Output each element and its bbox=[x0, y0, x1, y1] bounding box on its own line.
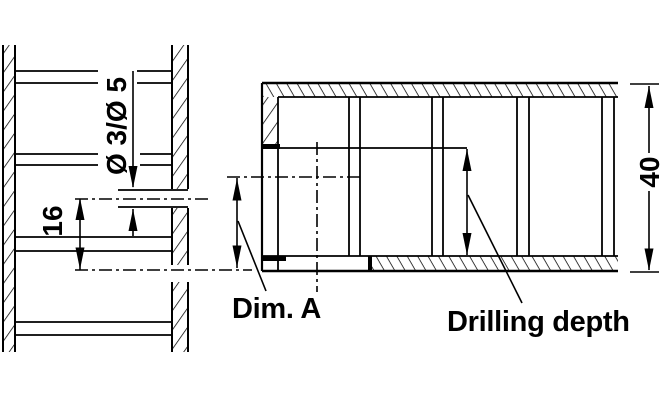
hole-diameter-label: Ø 3/Ø 5 bbox=[101, 77, 132, 175]
hole-spacing-label: 16 bbox=[37, 205, 68, 236]
system-holes bbox=[15, 71, 172, 335]
drilling-dimensions-diagram: Ø 3/Ø 5 16 40 Dim. A Drilling depth bbox=[0, 0, 660, 400]
drilling-depth-label: Drilling depth bbox=[447, 306, 630, 338]
left-panel-section bbox=[3, 45, 188, 352]
drill-hole-walls bbox=[349, 97, 614, 256]
drilling-depth-leader bbox=[468, 195, 522, 303]
dim-a-label: Dim. A bbox=[232, 293, 321, 325]
right-panel-section bbox=[262, 83, 618, 271]
technical-drawing-page: Ø 3/Ø 5 16 40 Dim. A Drilling depth bbox=[0, 0, 660, 400]
thickness-label: 40 bbox=[634, 156, 660, 187]
